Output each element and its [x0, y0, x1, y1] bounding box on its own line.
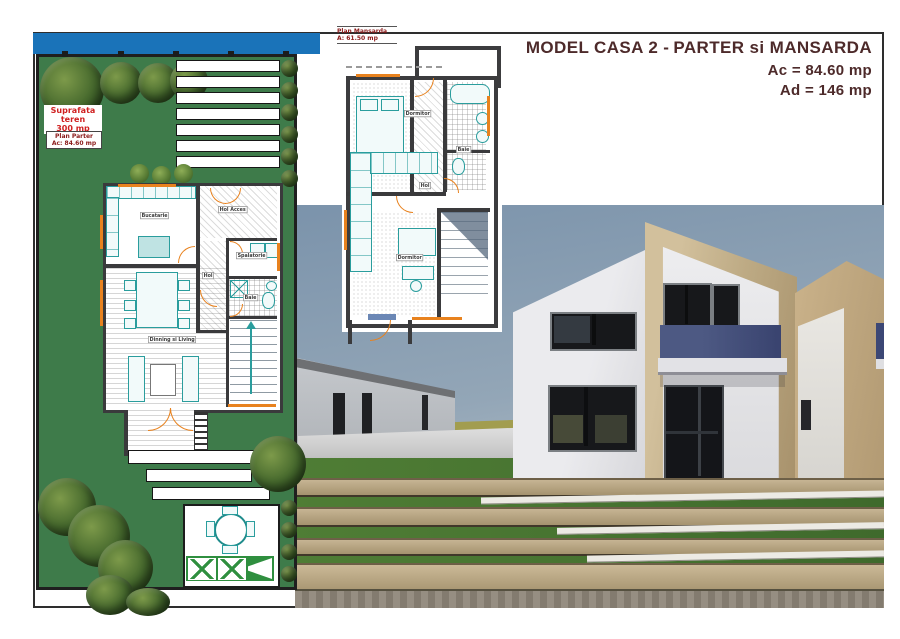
desk-chair [410, 280, 422, 292]
paving-slat [176, 76, 280, 88]
balcony-window [663, 283, 712, 330]
wall [226, 238, 229, 407]
attic-plan-area: A: 61.50 mp [337, 35, 397, 42]
deco-panel [218, 558, 246, 580]
presentation-board: MODEL CASA 2 -PARTER si MANSARDA Ac = 84… [0, 0, 900, 639]
cobblestone-pavement [295, 589, 884, 608]
window-sill [228, 404, 276, 407]
dining-table [136, 272, 178, 328]
pillow [381, 99, 399, 111]
window-sill [412, 317, 462, 320]
right-house-window [801, 400, 811, 430]
hedge-tree [281, 522, 297, 538]
attic-hall-floor [414, 82, 443, 192]
paving-slat [176, 92, 280, 104]
hedge-tree [281, 104, 298, 121]
patio-chair [206, 521, 215, 537]
balcony-window [712, 284, 740, 329]
bush [174, 164, 193, 183]
tree [250, 436, 306, 492]
paving-slat [176, 60, 280, 72]
wall [226, 276, 277, 279]
paving-slat [176, 140, 280, 152]
window-pane [554, 316, 590, 343]
room-label: Hol [202, 272, 214, 279]
sofa [128, 356, 145, 402]
floors-subtitle: PARTER si MANSARDA [673, 38, 872, 57]
wall [196, 183, 200, 333]
attic-plan-title: Plan Mansarda [337, 28, 397, 35]
window-pane [553, 415, 583, 443]
wall [443, 80, 447, 192]
window-pane [595, 415, 627, 443]
window-sill [356, 74, 400, 77]
balcony-railing-panel [660, 325, 781, 358]
hedge-tree [281, 126, 298, 143]
window-sill [118, 184, 176, 187]
total-area-label: Ad = 146 mp [520, 82, 872, 99]
plan-title-box: Plan Parter Ac: 84.60 mp [46, 131, 102, 149]
window-sill [344, 210, 347, 250]
wall [103, 264, 200, 268]
model-name: MODEL CASA 2 - [526, 38, 670, 57]
bathtub [450, 84, 490, 104]
main-house-upper-window [550, 312, 637, 351]
sink [266, 281, 277, 291]
chair [178, 318, 190, 329]
left-house-window [422, 395, 428, 430]
main-house-left-wing [513, 250, 645, 490]
wardrobe [370, 152, 438, 174]
hedge-tree [281, 566, 297, 582]
right-house-balcony-sliver [876, 323, 884, 359]
page-title: MODEL CASA 2 -PARTER si MANSARDA [520, 38, 872, 58]
surface-label: Suprafata teren 300 mp [44, 105, 102, 134]
patio-chair [246, 521, 255, 537]
patio-deco-strip [186, 556, 274, 581]
deco-panel [188, 558, 216, 580]
window-sill [277, 243, 280, 271]
paving-slat [176, 124, 280, 136]
fence-post [62, 51, 68, 57]
room-label: Dormitor [396, 254, 423, 261]
kitchen-counter [106, 197, 119, 257]
surface-label-line1: Suprafata teren [44, 106, 102, 124]
window-sill [100, 215, 103, 249]
patio-chair [222, 545, 238, 554]
wall [410, 80, 414, 192]
chair [178, 300, 190, 311]
patio-chair [222, 506, 238, 515]
deco-wedge [248, 558, 272, 579]
hedge-tree [281, 500, 297, 516]
stairs-arrow [250, 328, 252, 394]
sofa [182, 356, 199, 402]
wall [196, 330, 229, 333]
hedge-tree [281, 60, 298, 77]
wardrobe [350, 152, 372, 272]
coffee-table [150, 364, 176, 396]
main-house-lower-window [548, 385, 637, 452]
room-label: Spalatorie [236, 252, 267, 259]
hedge-tree [281, 82, 298, 99]
roof-outline-dashed [346, 66, 442, 68]
window-mullion [592, 314, 596, 345]
plan-title: Plan Parter [47, 133, 101, 140]
balcony-wall [348, 320, 352, 344]
room-label: Baie [456, 146, 471, 153]
toilet [452, 158, 465, 175]
bush [130, 164, 149, 183]
hedge-tree [281, 544, 297, 560]
chair [178, 280, 190, 291]
room-label: Bucatarie [140, 212, 169, 219]
attic-plan-header: Plan Mansarda A: 61.50 mp [337, 26, 397, 44]
fence-post [283, 51, 289, 57]
chair [124, 318, 136, 329]
left-house-window [362, 393, 372, 440]
bed [398, 228, 436, 256]
window-mullion [685, 285, 688, 324]
kitchen-counter [106, 186, 196, 199]
room-label: Hol [419, 182, 431, 189]
window-mullion [584, 387, 588, 446]
plan-area: Ac: 84.60 mp [47, 140, 101, 147]
window-sill [487, 96, 490, 136]
built-area-label: Ac = 84.60 mp [520, 62, 872, 79]
paving-slat [176, 108, 280, 120]
door-rail [666, 431, 718, 434]
fence-post [118, 51, 124, 57]
right-house-slab-sliver [876, 359, 884, 369]
balcony-wall [408, 320, 412, 344]
right-house-gable [798, 308, 844, 490]
tree [86, 575, 134, 615]
room-label: Hol Acces [218, 206, 247, 213]
room-label: Dinning si Living [148, 336, 196, 343]
tree [126, 588, 170, 616]
patio-table [214, 513, 248, 547]
fence-post [228, 51, 234, 57]
entrance-door [664, 385, 724, 482]
kitchen-island [138, 236, 170, 258]
tree [100, 62, 142, 104]
hedge-tree [281, 170, 298, 187]
pillow [360, 99, 378, 111]
balcony-slab [658, 358, 787, 375]
paving-slat [152, 487, 270, 500]
room-label: Dormitor [404, 110, 431, 117]
window-sill [100, 280, 103, 326]
toilet [262, 292, 275, 309]
title-block: MODEL CASA 2 -PARTER si MANSARDA Ac = 84… [520, 38, 872, 99]
chair [124, 280, 136, 291]
hedge-tree [281, 148, 298, 165]
stairs [230, 320, 277, 405]
room-label: Baie [243, 294, 258, 301]
paving-slat [146, 469, 252, 482]
paving-slat [176, 156, 280, 168]
fence-post [173, 51, 179, 57]
desk [402, 266, 434, 280]
chair [124, 300, 136, 311]
